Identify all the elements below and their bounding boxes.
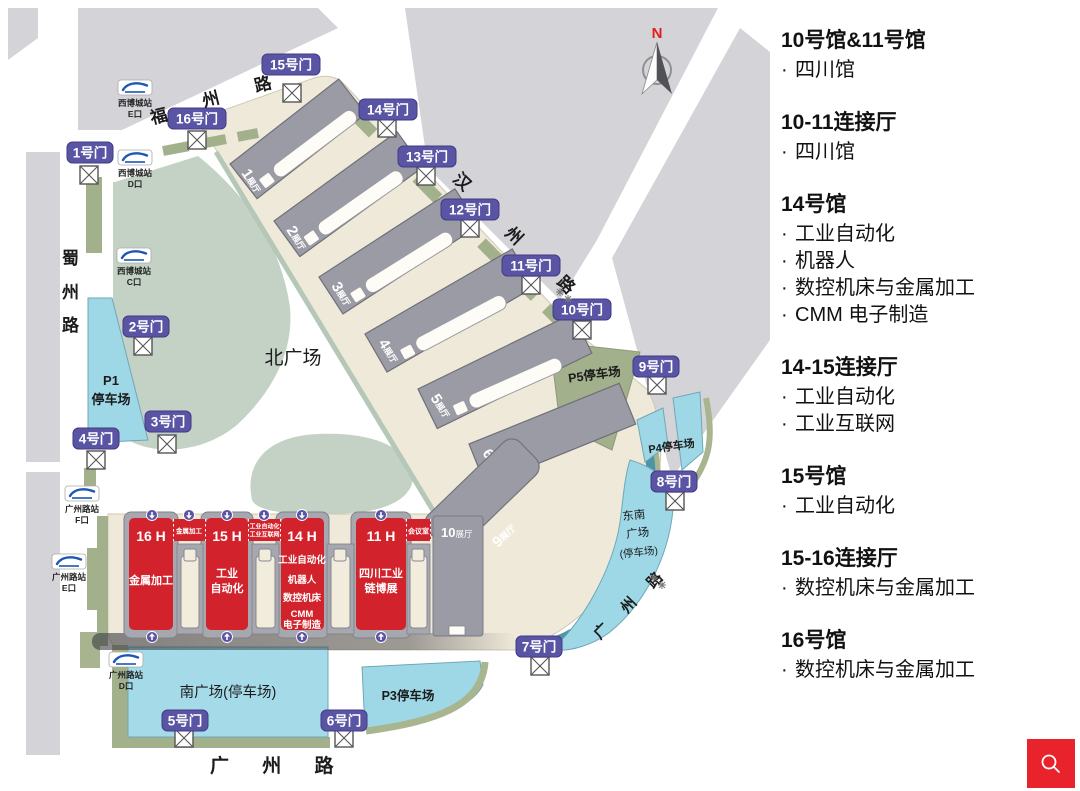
legend-item-text: 数控机床与金属加工: [795, 575, 1080, 602]
metro-station-exit: D口: [119, 681, 134, 691]
gate-label: 5号门: [168, 713, 203, 729]
gate-label: 4号门: [79, 431, 114, 447]
legend-item: ·四川馆: [781, 57, 1080, 84]
connector-label: 会议室: [408, 527, 429, 536]
gate-label: 15号门: [270, 57, 312, 73]
road-shuzhou-char: 路: [62, 315, 80, 335]
hall-14h-line: CMM: [291, 609, 314, 620]
gate-label: 13号门: [406, 149, 448, 165]
metro-icon: [118, 80, 152, 95]
gate-cross-icon: [158, 435, 176, 453]
road-guangzhou-south: 广 州 路: [210, 754, 348, 777]
bullet-icon: ·: [781, 275, 795, 302]
metro-station: 广州路站F口: [65, 486, 100, 525]
gate-cross-icon: [666, 492, 684, 510]
connector-15-14: 工业自动化 工业互联网: [248, 519, 281, 541]
bullet-icon: ·: [781, 493, 795, 520]
legend-section: 16号馆·数控机床与金属加工: [781, 628, 1080, 684]
legend-item-text: 数控机床与金属加工: [795, 657, 1080, 684]
legend-section: 14号馆·工业自动化·机器人·数控机床与金属加工·CMM 电子制造: [781, 192, 1080, 329]
gate-cross-icon: [648, 376, 666, 394]
p3-parking-label: P3停车场: [382, 688, 435, 703]
hall-14h-line: 电子制造: [283, 619, 322, 631]
legend-item: ·数控机床与金属加工: [781, 575, 1080, 602]
hall-11h-title: 11 H: [367, 528, 396, 544]
legend-section: 15-16连接厅·数控机床与金属加工: [781, 546, 1080, 602]
gate-cross-icon: [335, 729, 353, 747]
bullet-icon: ·: [781, 139, 795, 166]
hall-15h-title: 15 H: [212, 528, 242, 544]
road-shuzhou-char: 州: [61, 283, 79, 302]
hall-14h-line: 工业自动化: [278, 554, 326, 566]
gate-label: 10号门: [561, 302, 603, 318]
legend-section-title: 10-11连接厅: [781, 110, 1080, 136]
gate-label: 1号门: [73, 145, 108, 161]
metro-station-exit: F口: [75, 515, 89, 525]
gate-4: 4号门: [73, 428, 119, 469]
entrance-arrow-down-icon: [259, 510, 270, 521]
bullet-icon: ·: [781, 302, 795, 329]
hall-14h-line: 数控机床: [282, 592, 322, 604]
metro-station-name: 西博城站: [118, 168, 153, 178]
red-hall-slab: 10展厅 金属加工 工业自动化 工业互联网 会议室: [92, 512, 516, 650]
bullet-icon: ·: [781, 57, 795, 84]
connector-label: 工业自动化: [249, 523, 279, 531]
legend-section: 10-11连接厅·四川馆: [781, 110, 1080, 166]
bullet-icon: ·: [781, 575, 795, 602]
legend-section-title: 14号馆: [781, 192, 1080, 218]
metro-station-name: 广州路站: [52, 572, 87, 582]
entrance-arrow-down-icon: [376, 510, 387, 521]
hall-15h-line: 自动化: [211, 581, 244, 595]
gate-cross-icon: [80, 166, 98, 184]
gate-label: 6号门: [327, 713, 362, 729]
legend-item-text: 工业互联网: [795, 411, 1080, 438]
hall-10: 10展厅: [433, 516, 483, 636]
search-icon: [1038, 751, 1064, 777]
legend-item: ·CMM 电子制造: [781, 302, 1080, 329]
p1-parking-label: 停车场: [91, 392, 130, 407]
legend-item-text: CMM 电子制造: [795, 302, 1080, 329]
expo-map-page: 1展厅2展厅3展厅4展厅5展厅6展厅 9展厅: [0, 0, 1080, 791]
legend-section-title: 10号馆&11号馆: [781, 28, 1080, 54]
hall-11h-line: 四川工业: [359, 566, 403, 580]
connector-label: 金属加工: [175, 526, 203, 535]
legend-section-title: 15-16连接厅: [781, 546, 1080, 572]
legend-item-text: 数控机床与金属加工: [795, 275, 1080, 302]
gate-label: 3号门: [151, 414, 186, 430]
north-plaza-label: 北广场: [264, 347, 321, 369]
legend-item-text: 四川馆: [795, 57, 1080, 84]
legend-section: 14-15连接厅·工业自动化·工业互联网: [781, 355, 1080, 438]
legend-item: ·工业自动化: [781, 493, 1080, 520]
metro-icon: [109, 652, 143, 667]
bullet-icon: ·: [781, 248, 795, 275]
legend-section: 15号馆·工业自动化: [781, 464, 1080, 520]
gate-7: 7号门: [516, 636, 562, 675]
gate-label: 7号门: [522, 639, 557, 655]
metro-station-exit: E口: [128, 109, 142, 119]
entrance-arrow-up-icon: [222, 632, 233, 643]
bullet-icon: ·: [781, 221, 795, 248]
legend-panel: 10号馆&11号馆·四川馆10-11连接厅·四川馆14号馆·工业自动化·机器人·…: [781, 28, 1080, 710]
metro-station-name: 广州路站: [109, 670, 144, 680]
gate-label: 9号门: [639, 359, 674, 375]
hall-16h-line: 金属加工: [128, 573, 173, 587]
entrance-arrow-down-icon: [222, 510, 233, 521]
gate-label: 14号门: [367, 102, 409, 118]
hall-14h-line: 机器人: [288, 574, 317, 586]
road-fuzhou-char: 路: [252, 72, 274, 96]
entrance-arrow-up-icon: [147, 632, 158, 643]
metro-icon: [117, 248, 151, 263]
legend-item-text: 四川馆: [795, 139, 1080, 166]
metro-station-exit: D口: [128, 179, 143, 189]
gate-cross-icon: [531, 657, 549, 675]
legend-item-text: 工业自动化: [795, 221, 1080, 248]
entrance-arrow-down-icon: [297, 510, 308, 521]
gate-cross-icon: [378, 119, 396, 137]
metro-icon: [52, 554, 86, 569]
hall-16h-title: 16 H: [136, 528, 166, 544]
entrance-arrow-up-icon: [297, 632, 308, 643]
gate-cross-icon: [175, 729, 193, 747]
metro-station-exit: C口: [127, 277, 142, 287]
connector-16-15: 金属加工: [173, 519, 206, 541]
legend-item: ·四川馆: [781, 139, 1080, 166]
gate-cross-icon: [188, 131, 206, 149]
legend-item-text: 工业自动化: [795, 493, 1080, 520]
metro-station-name: 西博城站: [118, 98, 153, 108]
hall-11h-line: 链博展: [365, 581, 399, 595]
compass-north-label: N: [652, 25, 663, 42]
gate-cross-icon: [417, 167, 435, 185]
legend-section-title: 16号馆: [781, 628, 1080, 654]
bullet-icon: ·: [781, 411, 795, 438]
south-plaza-label: 南广场(停车场): [180, 684, 277, 701]
legend-item: ·机器人: [781, 248, 1080, 275]
p1-parking-label: P1: [103, 373, 119, 388]
gate-label: 8号门: [657, 474, 692, 490]
metro-icon: [118, 150, 152, 165]
gate-label: 11号门: [510, 258, 551, 274]
metro-station-name: 广州路站: [65, 504, 100, 514]
gate-cross-icon: [522, 276, 540, 294]
metro-station-exit: E口: [62, 583, 76, 593]
bullet-icon: ·: [781, 657, 795, 684]
legend-section-title: 14-15连接厅: [781, 355, 1080, 381]
legend-item: ·工业互联网: [781, 411, 1080, 438]
legend-item: ·工业自动化: [781, 384, 1080, 411]
connector-label: 工业互联网: [249, 531, 279, 539]
entrance-arrow-down-icon: [147, 510, 158, 521]
gate-label: 16号门: [176, 111, 218, 127]
legend-item-text: 机器人: [795, 248, 1080, 275]
hall-14h-title: 14 H: [287, 528, 317, 544]
legend-section-title: 15号馆: [781, 464, 1080, 490]
hall-15h-line: 工业: [216, 566, 238, 580]
search-button[interactable]: [1027, 739, 1075, 788]
connector-11-10: 会议室: [406, 519, 431, 541]
gate-cross-icon: [461, 219, 479, 237]
legend-section: 10号馆&11号馆·四川馆: [781, 28, 1080, 84]
gate-cross-icon: [283, 84, 301, 102]
legend-item-text: 工业自动化: [795, 384, 1080, 411]
gate-cross-icon: [87, 451, 105, 469]
entrance-arrow-up-icon: [376, 632, 387, 643]
entrance-arrow-down-icon: [184, 510, 195, 521]
gate-1: 1号门: [67, 142, 113, 184]
gate-label: 12号门: [449, 202, 491, 218]
gate-cross-icon: [573, 321, 591, 339]
gate-label: 2号门: [129, 319, 164, 335]
metro-station-name: 西博城站: [117, 266, 152, 276]
gate-cross-icon: [134, 337, 152, 355]
legend-item: ·工业自动化: [781, 221, 1080, 248]
legend-item: ·数控机床与金属加工: [781, 275, 1080, 302]
metro-icon: [65, 486, 99, 501]
road-shuzhou-char: 蜀: [62, 249, 79, 268]
legend-item: ·数控机床与金属加工: [781, 657, 1080, 684]
bullet-icon: ·: [781, 384, 795, 411]
